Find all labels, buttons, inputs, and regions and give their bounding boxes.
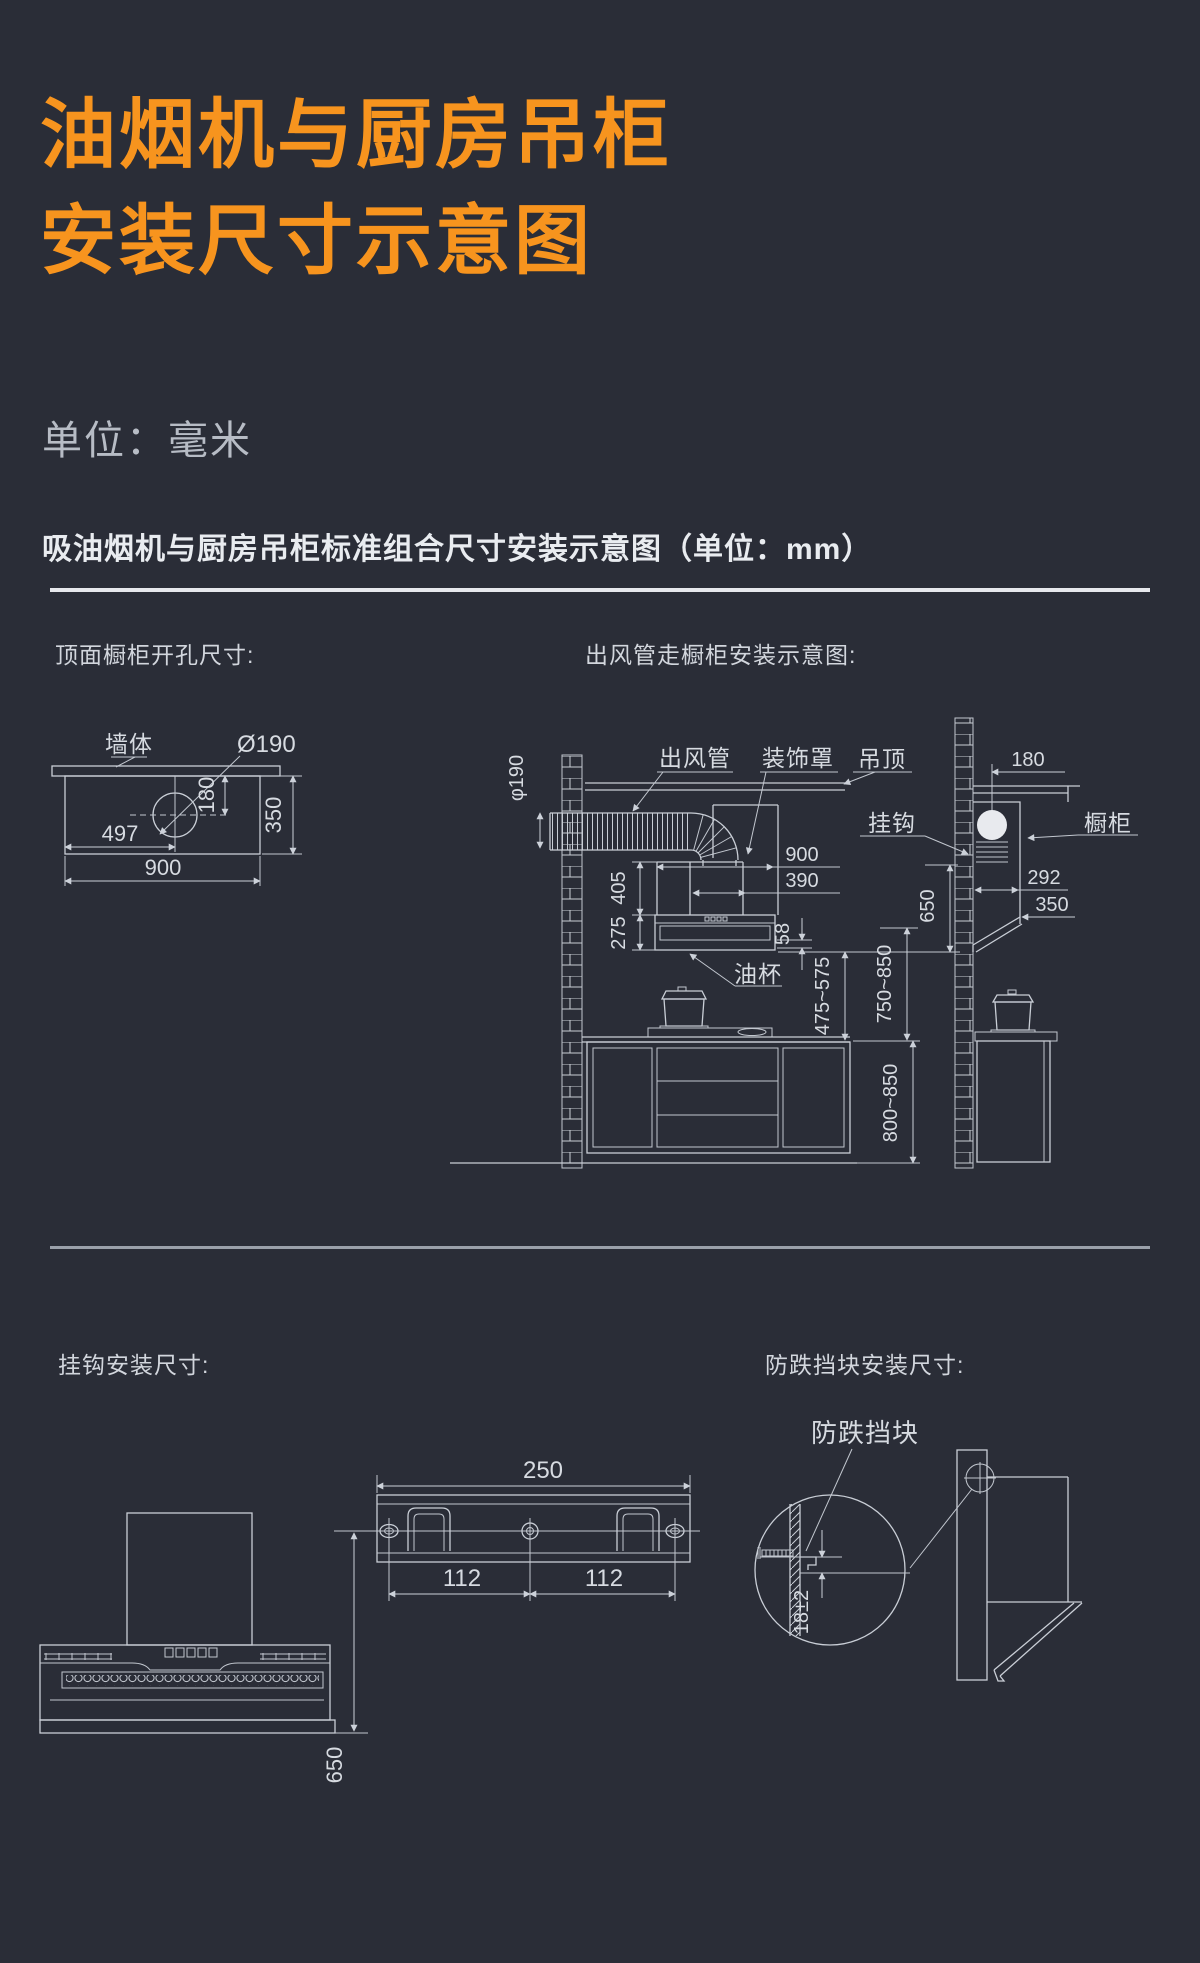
duct-label: 出风管 <box>659 745 731 771</box>
hook-callout: 挂钩 <box>860 810 968 854</box>
svg-text:292: 292 <box>1027 867 1060 889</box>
wall-callout: 墙体 <box>105 731 153 767</box>
stop-block-section <box>800 1557 816 1570</box>
dim-350-cabinet: 350 <box>1022 894 1075 917</box>
base-cabinet <box>450 1037 857 1163</box>
svg-text:180: 180 <box>1011 749 1044 771</box>
svg-text:180: 180 <box>194 777 219 814</box>
dim-650-hook: 650 <box>917 865 958 952</box>
ceiling-label: 吊顶 <box>858 746 906 772</box>
svg-text:650: 650 <box>917 889 939 922</box>
dim-180-wall: 180 <box>992 749 1065 825</box>
svg-text:φ190: φ190 <box>506 755 528 801</box>
heading-block-install: 防跌挡块安装尺寸: <box>765 1346 964 1380</box>
cover-callout: 装饰罩 <box>748 745 838 854</box>
svg-text:390: 390 <box>785 870 818 892</box>
page-title-line2: 安装尺寸示意图 <box>40 204 593 280</box>
wall-label: 墙体 <box>105 731 153 757</box>
dim-900: 900 <box>65 855 260 886</box>
hook-label: 挂钩 <box>868 810 916 836</box>
stop-block-diagram: 防跌挡块 18±2 <box>600 1400 1160 1730</box>
right-ceiling <box>973 786 1080 802</box>
ceiling-callout: 吊顶 <box>844 746 912 784</box>
dim-phi190: φ190 <box>506 755 540 848</box>
hanging-cabinet <box>713 805 778 915</box>
dim-292: 292 <box>975 867 1068 890</box>
top-opening-diagram: 墙体 Ø190 497 180 350 900 <box>30 690 410 910</box>
dim-800-850: 800~850 <box>853 1041 920 1163</box>
svg-text:405: 405 <box>608 871 630 904</box>
hood-front-view <box>40 1513 335 1733</box>
wall-hook <box>976 810 1008 862</box>
hood-side-profile <box>973 917 1022 952</box>
duct-callout: 出风管 <box>633 745 733 811</box>
svg-text:18±2: 18±2 <box>791 1590 813 1634</box>
svg-text:58: 58 <box>772 923 794 945</box>
cabinet-callout: 橱柜 <box>1028 810 1138 838</box>
page-title-line1: 油烟机与厨房吊柜 <box>40 98 672 174</box>
oilcup-label: 油杯 <box>734 961 782 987</box>
section-title: 吸油烟机与厨房吊柜标准组合尺寸安装示意图（单位：mm） <box>42 524 872 568</box>
dim-390-outlet: 390 <box>693 870 840 893</box>
opening-outline <box>65 776 260 854</box>
svg-text:350: 350 <box>1035 894 1068 916</box>
installation-guide-page: 油烟机与厨房吊柜 安装尺寸示意图 单位：毫米 吸油烟机与厨房吊柜标准组合尺寸安装… <box>0 0 1200 1963</box>
dim-275-hood: 275 <box>608 915 660 950</box>
heading-top-opening: 顶面橱柜开孔尺寸: <box>55 636 254 670</box>
divider-bottom <box>50 1246 1150 1249</box>
ceiling <box>585 783 845 790</box>
range-hood-body <box>655 915 775 950</box>
svg-text:800~850: 800~850 <box>880 1064 902 1142</box>
oilcup-callout: 油杯 <box>690 954 782 987</box>
cabinet-label: 橱柜 <box>1084 810 1132 836</box>
right-wall <box>955 718 973 1168</box>
dim-650-height: 650 <box>322 1531 389 1783</box>
duct-install-diagram: 吊顶 出风管 φ190 装饰罩 <box>420 690 1160 1182</box>
svg-text:497: 497 <box>102 821 139 846</box>
wall-strip <box>52 766 280 776</box>
svg-text:250: 250 <box>523 1457 563 1484</box>
dim-497: 497 <box>65 821 175 847</box>
detail-circle: 18±2 <box>755 1495 910 1645</box>
dim-350: 350 <box>261 776 302 854</box>
block-label: 防跌挡块 <box>811 1418 919 1448</box>
detail-marker-circle <box>964 1462 996 1494</box>
svg-text:750~850: 750~850 <box>874 945 896 1023</box>
svg-text:350: 350 <box>261 797 286 834</box>
svg-text:900: 900 <box>145 855 182 880</box>
block-callout: 防跌挡块 <box>806 1418 919 1551</box>
unit-note: 单位：毫米 <box>42 408 252 466</box>
dim-475-575: 475~575 <box>778 952 960 1040</box>
cooktop-and-pot <box>648 987 772 1037</box>
svg-text:275: 275 <box>608 916 630 949</box>
svg-text:650: 650 <box>322 1747 347 1784</box>
dim-750-850: 750~850 <box>874 928 918 1040</box>
hood-side-view <box>910 1450 1082 1681</box>
decorative-cover <box>657 862 743 915</box>
hole-dia-label: Ø190 <box>237 731 296 758</box>
dim-405-cover: 405 <box>608 862 660 915</box>
heading-duct-diagram: 出风管走橱柜安装示意图: <box>585 636 856 670</box>
svg-text:112: 112 <box>443 1565 481 1592</box>
cover-label: 装饰罩 <box>762 745 834 771</box>
svg-text:475~575: 475~575 <box>812 957 834 1035</box>
svg-text:900: 900 <box>785 844 818 866</box>
divider-top <box>50 588 1150 592</box>
heading-hook-install: 挂钩安装尺寸: <box>58 1346 209 1380</box>
dim-180: 180 <box>194 776 225 815</box>
right-base-cabinet <box>975 990 1057 1162</box>
